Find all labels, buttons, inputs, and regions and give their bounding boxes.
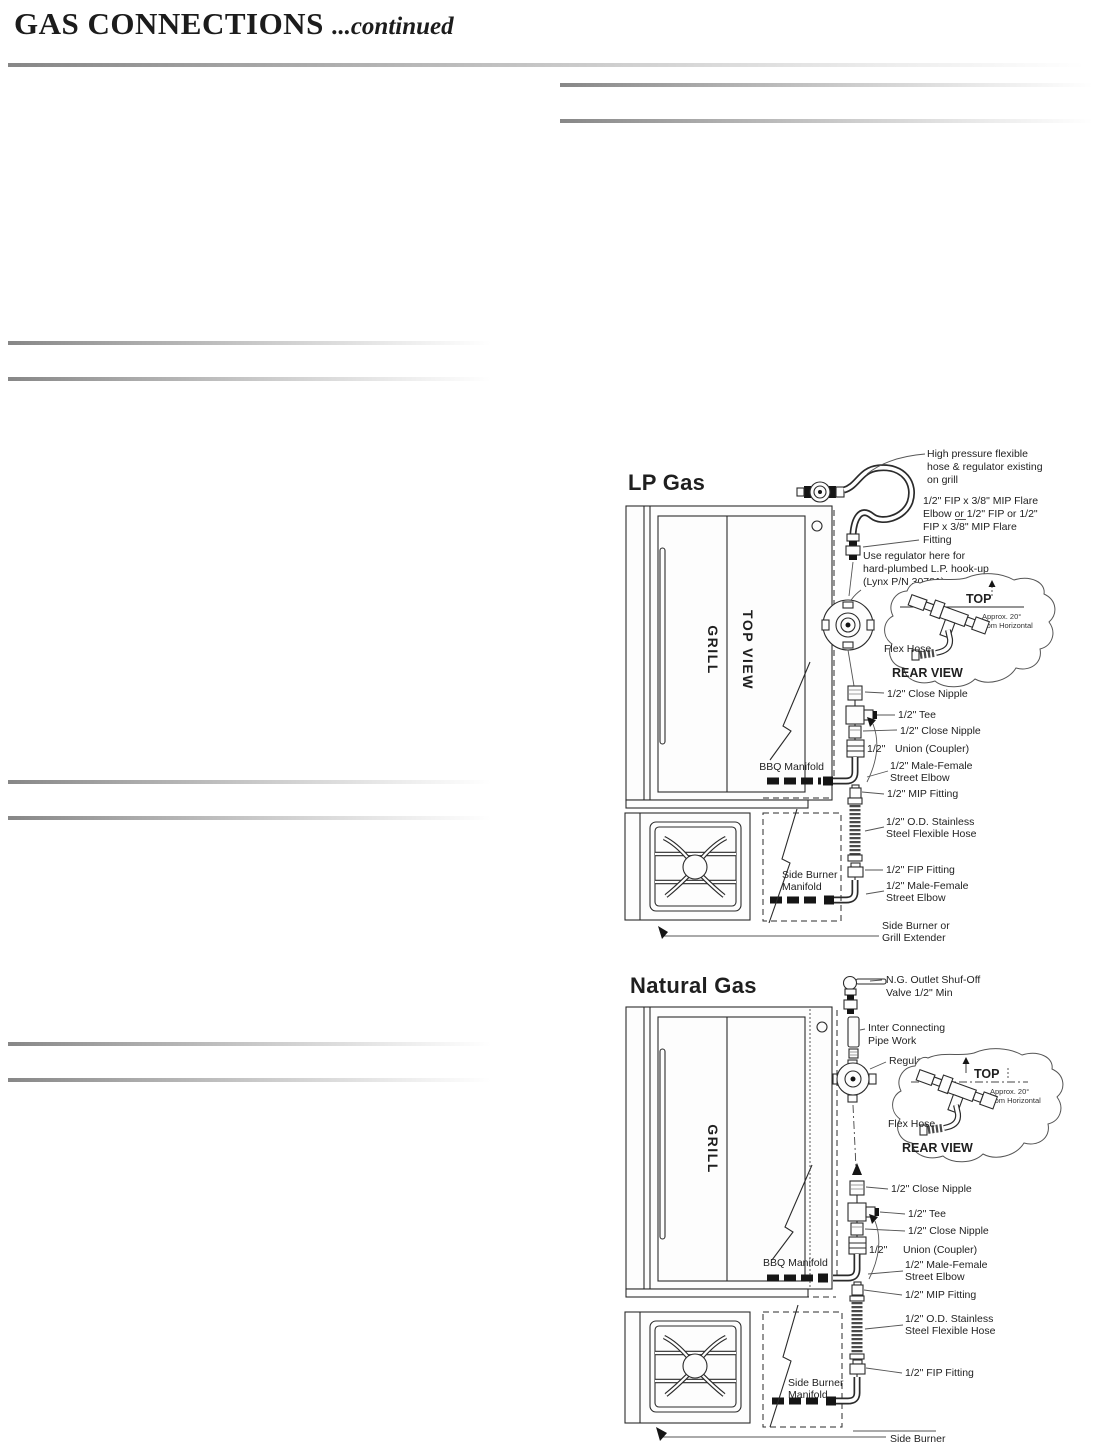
lp-hose-label2: Steel Flexible Hose — [886, 828, 977, 840]
divider-rule-full — [8, 63, 1085, 67]
lp-flare-line2: Elbow or 1/2" FIP or 1/2" — [923, 508, 1038, 520]
ng-mip-label: 1/2" MIP Fitting — [905, 1289, 976, 1301]
lp-sb-manifold-label1: Side Burner — [782, 869, 838, 881]
manual-page: GAS CONNECTIONS ...continued LP Gas GRIL… — [0, 0, 1093, 1453]
lp-inset-top-label: TOP — [966, 592, 991, 606]
lp-side-burner-manifold: Side Burner Manifold — [763, 813, 841, 921]
ng-sb-manifold-label1: Side Burner — [788, 1377, 844, 1389]
lp-side-burner-label1: Side Burner or — [882, 920, 950, 932]
lp-usereg-line1: Use regulator here for — [863, 550, 966, 562]
ng-valve-label2: Valve 1/2" Min — [886, 987, 953, 999]
lp-union-size: 1/2" — [867, 743, 886, 755]
ng-hose-label1: 1/2" O.D. Stainless — [905, 1313, 993, 1325]
divider-rule-right-1 — [560, 83, 1093, 87]
lp-top-view-label: TOP VIEW — [740, 610, 756, 690]
lp-close-nipple1-label: 1/2" Close Nipple — [887, 688, 968, 700]
ng-tee-label: 1/2" Tee — [908, 1208, 946, 1220]
ng-shutoff-valve: N.G. Outlet Shuf-Off Valve 1/2" Min — [844, 974, 981, 1014]
ng-hose-label2: Steel Flexible Hose — [905, 1325, 996, 1337]
divider-rule-left-1 — [8, 341, 491, 345]
lp-heading: LP Gas — [628, 470, 705, 495]
ng-interconnecting-pipe: Inter Connecting Pipe Work — [848, 1017, 945, 1058]
lp-male-female1-label1: 1/2" Male-Female — [890, 760, 973, 772]
lp-hose-label1: 1/2" O.D. Stainless — [886, 816, 974, 828]
lp-inset-rear-view: REAR VIEW — [892, 666, 963, 680]
ng-heading: Natural Gas — [630, 973, 757, 998]
lp-flare-line3: FIP x 3/8" MIP Flare — [923, 521, 1017, 533]
ng-inset-rear-view: REAR VIEW — [902, 1141, 973, 1155]
ng-pipework-label2: Pipe Work — [868, 1035, 917, 1047]
lp-side-burner-label2: Grill Extender — [882, 932, 946, 944]
ng-close-nipple2-label: 1/2" Close Nipple — [908, 1225, 989, 1237]
lp-flare-line4: Fitting — [923, 534, 952, 546]
ng-pipework-label1: Inter Connecting — [868, 1022, 945, 1034]
ng-male-female1-label2: Street Elbow — [905, 1271, 965, 1283]
ng-inset-approx1: Approx. 20° — [990, 1087, 1029, 1096]
ng-rear-view-inset: TOP Approx. 20° from Horizontal Flex Hos… — [888, 1049, 1063, 1162]
page-title-text: GAS CONNECTIONS — [14, 6, 324, 41]
divider-rule-right-2 — [560, 119, 1093, 123]
ng-grill: GRILL — [626, 1007, 837, 1297]
ng-grill-label: GRILL — [705, 1124, 721, 1174]
lp-hp-line2: hose & regulator existing — [927, 461, 1043, 473]
divider-rule-left-3 — [8, 780, 491, 784]
lp-union-label: Union (Coupler) — [895, 743, 969, 755]
ng-inset-flex-hose: Flex Hose — [888, 1118, 935, 1130]
divider-rule-left-5 — [8, 1042, 491, 1046]
lp-close-nipple2-label: 1/2" Close Nipple — [900, 725, 981, 737]
lp-hp-line3: on grill — [927, 474, 958, 486]
lp-hp-line1: High pressure flexible — [927, 448, 1028, 460]
divider-rule-left-6 — [8, 1078, 491, 1082]
ng-male-female1-label1: 1/2" Male-Female — [905, 1259, 988, 1271]
lp-male-female2-label1: 1/2" Male-Female — [886, 880, 969, 892]
ng-side-burner-label: Side Burner — [890, 1433, 946, 1445]
page-title-continued: ...continued — [332, 13, 454, 40]
lp-gas-diagram: LP Gas GRILL TOP VIEW — [620, 440, 1093, 965]
ng-break-line-lower — [770, 1305, 798, 1427]
lp-male-female2-label2: Street Elbow — [886, 892, 946, 904]
divider-rule-left-4 — [8, 816, 491, 820]
lp-rear-view-inset: TOP Approx. 20° from Horizontal Flex Hos… — [884, 574, 1055, 687]
lp-usereg-line2: hard-plumbed L.P. hook-up — [863, 563, 989, 575]
lp-break-line-lower — [769, 809, 797, 923]
ng-valve-label1: N.G. Outlet Shuf-Off — [886, 974, 980, 986]
ng-union-label: Union (Coupler) — [903, 1244, 977, 1256]
ng-union-size: 1/2" — [869, 1244, 888, 1256]
lp-inset-approx1: Approx. 20° — [982, 612, 1021, 621]
divider-rule-left-2 — [8, 377, 491, 381]
ng-inset-top-label: TOP — [974, 1067, 999, 1081]
lp-mip-label: 1/2" MIP Fitting — [887, 788, 958, 800]
ng-side-burner-box — [625, 1312, 750, 1423]
lp-flare-line1: 1/2" FIP x 3/8" MIP Flare — [923, 495, 1038, 507]
lp-side-burner-box — [625, 813, 750, 920]
ng-close-nipple1-label: 1/2" Close Nipple — [891, 1183, 972, 1195]
lp-male-female1-label2: Street Elbow — [890, 772, 950, 784]
ng-fip-label: 1/2" FIP Fitting — [905, 1367, 974, 1379]
lp-grill-label: GRILL — [705, 625, 721, 675]
page-title: GAS CONNECTIONS ...continued — [14, 6, 454, 42]
lp-bbq-manifold-label: BBQ Manifold — [759, 761, 824, 773]
lp-fip-label: 1/2" FIP Fitting — [886, 864, 955, 876]
lp-tee-label: 1/2" Tee — [898, 709, 936, 721]
lp-sb-manifold-label2: Manifold — [782, 881, 822, 893]
natural-gas-diagram: Natural Gas N.G. Outlet Shuf-Off Valve 1… — [620, 965, 1093, 1453]
lp-inset-flex-hose: Flex Hose — [884, 643, 931, 655]
